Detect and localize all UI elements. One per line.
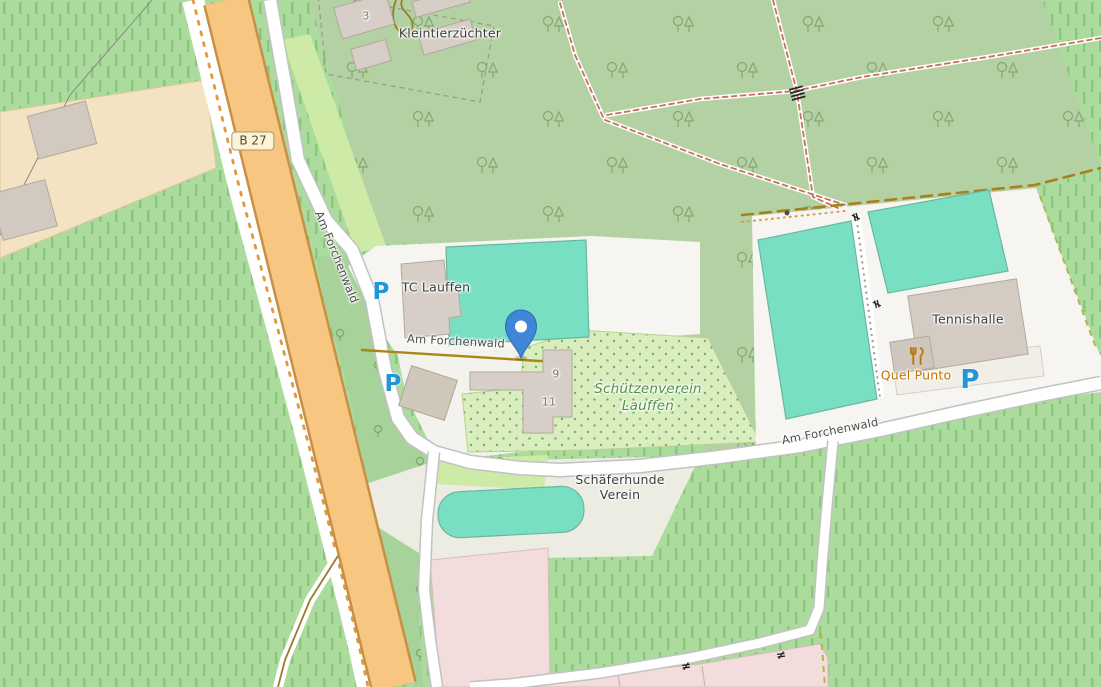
parking-icon-roadside: P [384, 371, 401, 397]
label-house-number-9: 9 [552, 368, 559, 381]
map-tiles [0, 0, 1101, 687]
label-tc-lauffen: TC Lauffen [402, 280, 471, 295]
label-schaeferhunde-line1: Schäferhunde [575, 472, 664, 487]
parking-icon-tc-lauffen: P [372, 279, 389, 305]
label-house-number-11: 11 [542, 396, 556, 409]
label-tennishalle: Tennishalle [932, 312, 1003, 327]
parking-icon-tennishalle: P [960, 365, 979, 395]
label-kleintierzuechter: Kleintierzüchter [399, 26, 501, 41]
bollard-icon [785, 211, 790, 216]
pitch-dog-club [437, 485, 585, 539]
gate-icon: ≠ [775, 647, 787, 662]
label-quel-punto: Quel Punto [881, 368, 952, 383]
label-schaeferhunde-line2: Verein [575, 487, 664, 502]
label-house-number-3: 3 [362, 10, 369, 23]
label-schuetzenverein-line1: Schützenverein [594, 381, 702, 398]
map-canvas[interactable]: Kleintierzüchter 3 B 27 Am Forchenwald A… [0, 0, 1101, 687]
label-schuetzenverein: Schützenverein Lauffen [594, 381, 702, 415]
route-badge-b27: B 27 [231, 132, 274, 151]
label-schaeferhunde: Schäferhunde Verein [575, 472, 664, 502]
label-schuetzenverein-line2: Lauffen [594, 398, 702, 415]
gate-icon: ≠ [680, 658, 692, 673]
